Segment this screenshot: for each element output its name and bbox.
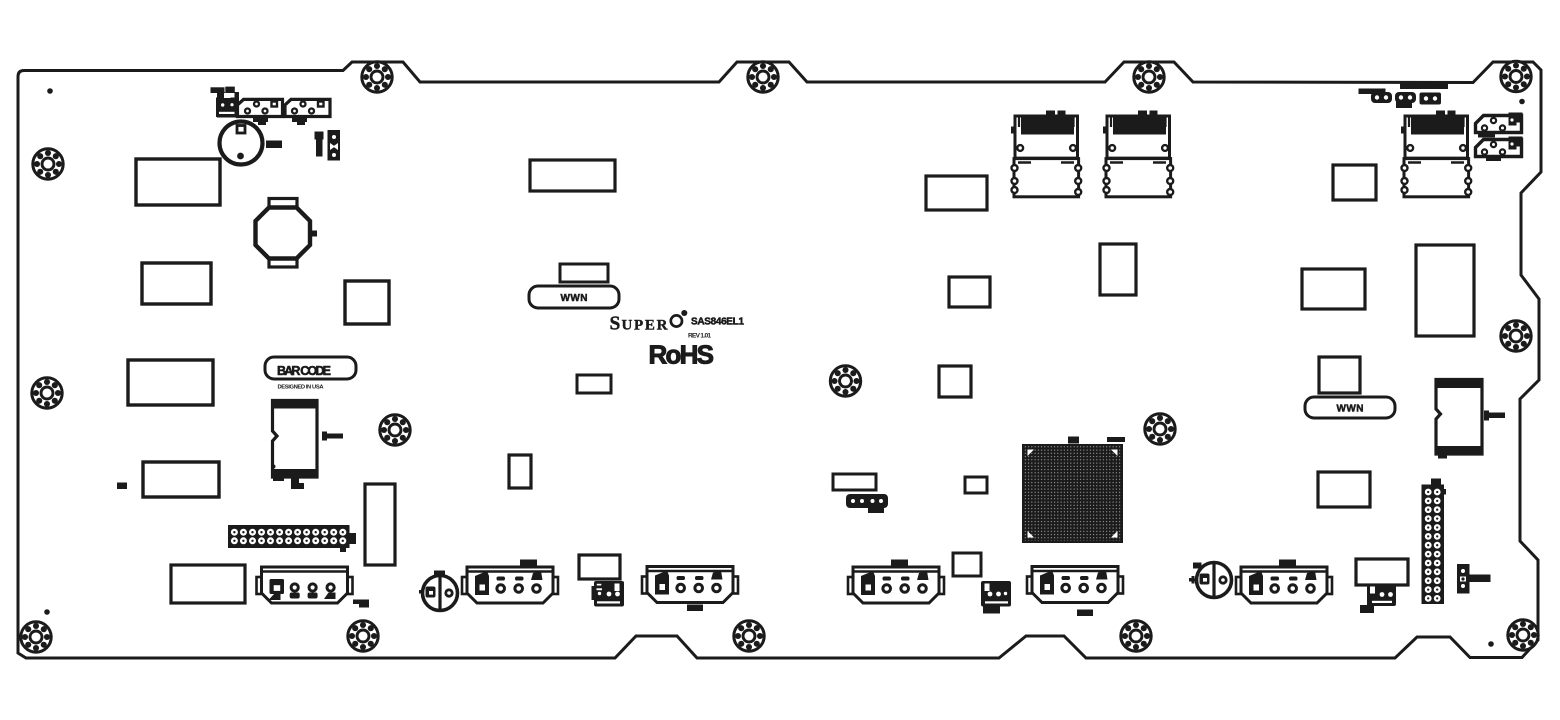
svg-text:SAS846EL1: SAS846EL1: [691, 317, 744, 328]
svg-text:BAR CODE: BAR CODE: [277, 364, 331, 378]
svg-text:WWN: WWN: [1337, 404, 1364, 415]
svg-text:S: S: [610, 314, 621, 335]
svg-text:UPER: UPER: [622, 318, 669, 334]
svg-text:DESIGNED IN USA: DESIGNED IN USA: [278, 385, 325, 391]
svg-text:REV 1.01: REV 1.01: [688, 333, 711, 340]
svg-text:RoHS: RoHS: [649, 340, 715, 370]
svg-text:WWN: WWN: [561, 293, 588, 304]
